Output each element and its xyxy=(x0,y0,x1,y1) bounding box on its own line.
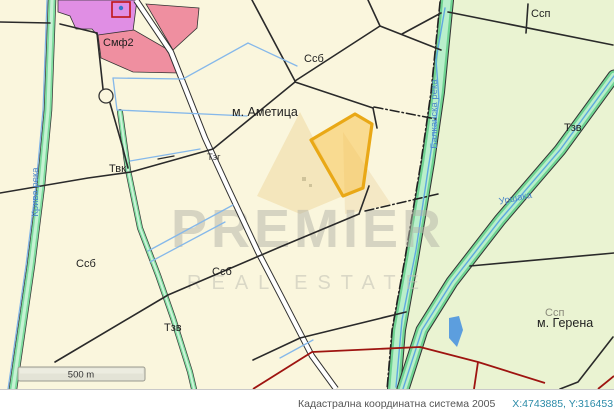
label-smf2: Смф2 xyxy=(103,37,134,49)
label-kriva-reka: Крива река xyxy=(30,167,41,217)
status-line: Кадастрална координатна система 2005 X:4… xyxy=(298,398,614,410)
label-tzg: Тзг xyxy=(207,152,221,163)
label-tvk: Твк xyxy=(109,163,126,175)
label-ametitsa: м. Аметица xyxy=(232,105,298,119)
map-viewport[interactable]: PREMIER REAL ESTATE xyxy=(0,0,614,390)
label-ssb-left: Ссб xyxy=(76,258,96,270)
label-ssp-top: Ссп xyxy=(531,8,550,20)
label-ssb-top: Ссб xyxy=(304,53,324,65)
coordinate-system-label: Кадастрална координатна система 2005 xyxy=(298,398,495,410)
label-ssb-mid: Ссб xyxy=(212,266,232,278)
blue-point-marker xyxy=(119,6,123,10)
cadastre-app: PREMIER REAL ESTATE xyxy=(0,0,614,416)
cadastral-map[interactable]: PREMIER REAL ESTATE xyxy=(0,0,614,389)
cursor-coordinates: X:4743885, Y:316453 xyxy=(512,398,613,410)
scale-bar-label: 500 m xyxy=(68,370,94,381)
label-tzv-right: Тзв xyxy=(564,122,582,134)
label-gerena: м. Герена xyxy=(537,316,593,330)
label-tzv-bottom: Тзв xyxy=(164,322,182,334)
label-balkanska-reka: Балканска река xyxy=(429,79,440,149)
scale-bar: 500 m xyxy=(18,367,145,381)
status-bar: Кадастрална координатна система 2005 X:4… xyxy=(0,390,614,416)
